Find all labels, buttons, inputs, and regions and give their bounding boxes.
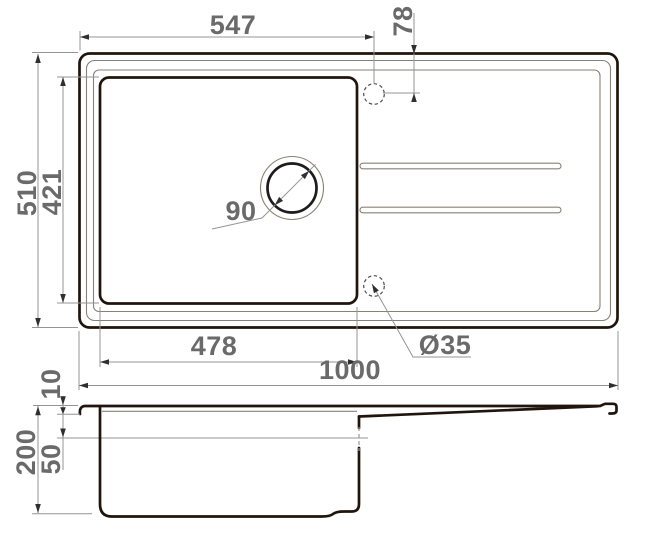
bowl-profile — [100, 407, 359, 517]
drainboard-groove-1 — [360, 163, 561, 169]
faucet-hole-top — [364, 84, 385, 105]
dim-bowl-width-label: 478 — [191, 331, 238, 361]
dim-faucet-hole-diameter: Ø35 — [372, 284, 471, 360]
dim-faucet-hole-diameter-label: Ø35 — [419, 330, 472, 360]
drainboard-groove-2 — [360, 207, 561, 213]
dim-drain-diameter-label: 90 — [225, 196, 256, 226]
dim-rim-height-label: 10 — [36, 368, 66, 399]
dim-bowl-depth: 421 — [37, 77, 99, 303]
dim-ledge-height-label: 50 — [36, 443, 66, 474]
bowl-outline — [100, 78, 357, 304]
dim-rim-height: 10 — [33, 368, 80, 419]
sink-outer-edge — [80, 54, 618, 328]
sink-deck-line — [94, 70, 601, 312]
dim-ledge-height: 50 — [36, 419, 66, 475]
technical-drawing-canvas: 547 78 510 421 — [0, 0, 647, 538]
drainboard-slope — [359, 406, 597, 416]
dim-top-width: 547 — [80, 10, 374, 84]
dim-faucet-offset-label: 78 — [388, 5, 418, 36]
side-view: 10 200 50 — [11, 368, 617, 516]
dim-bowl-depth-label: 421 — [37, 169, 67, 216]
top-view: 547 78 510 421 — [12, 5, 618, 390]
sink-drawing-svg: 547 78 510 421 — [0, 0, 647, 538]
sink-inner-rim-line — [87, 61, 611, 321]
dim-overall-width-label: 1000 — [319, 355, 381, 385]
dim-top-width-label: 547 — [210, 10, 257, 40]
dim-overall-width: 1000 — [79, 331, 618, 390]
